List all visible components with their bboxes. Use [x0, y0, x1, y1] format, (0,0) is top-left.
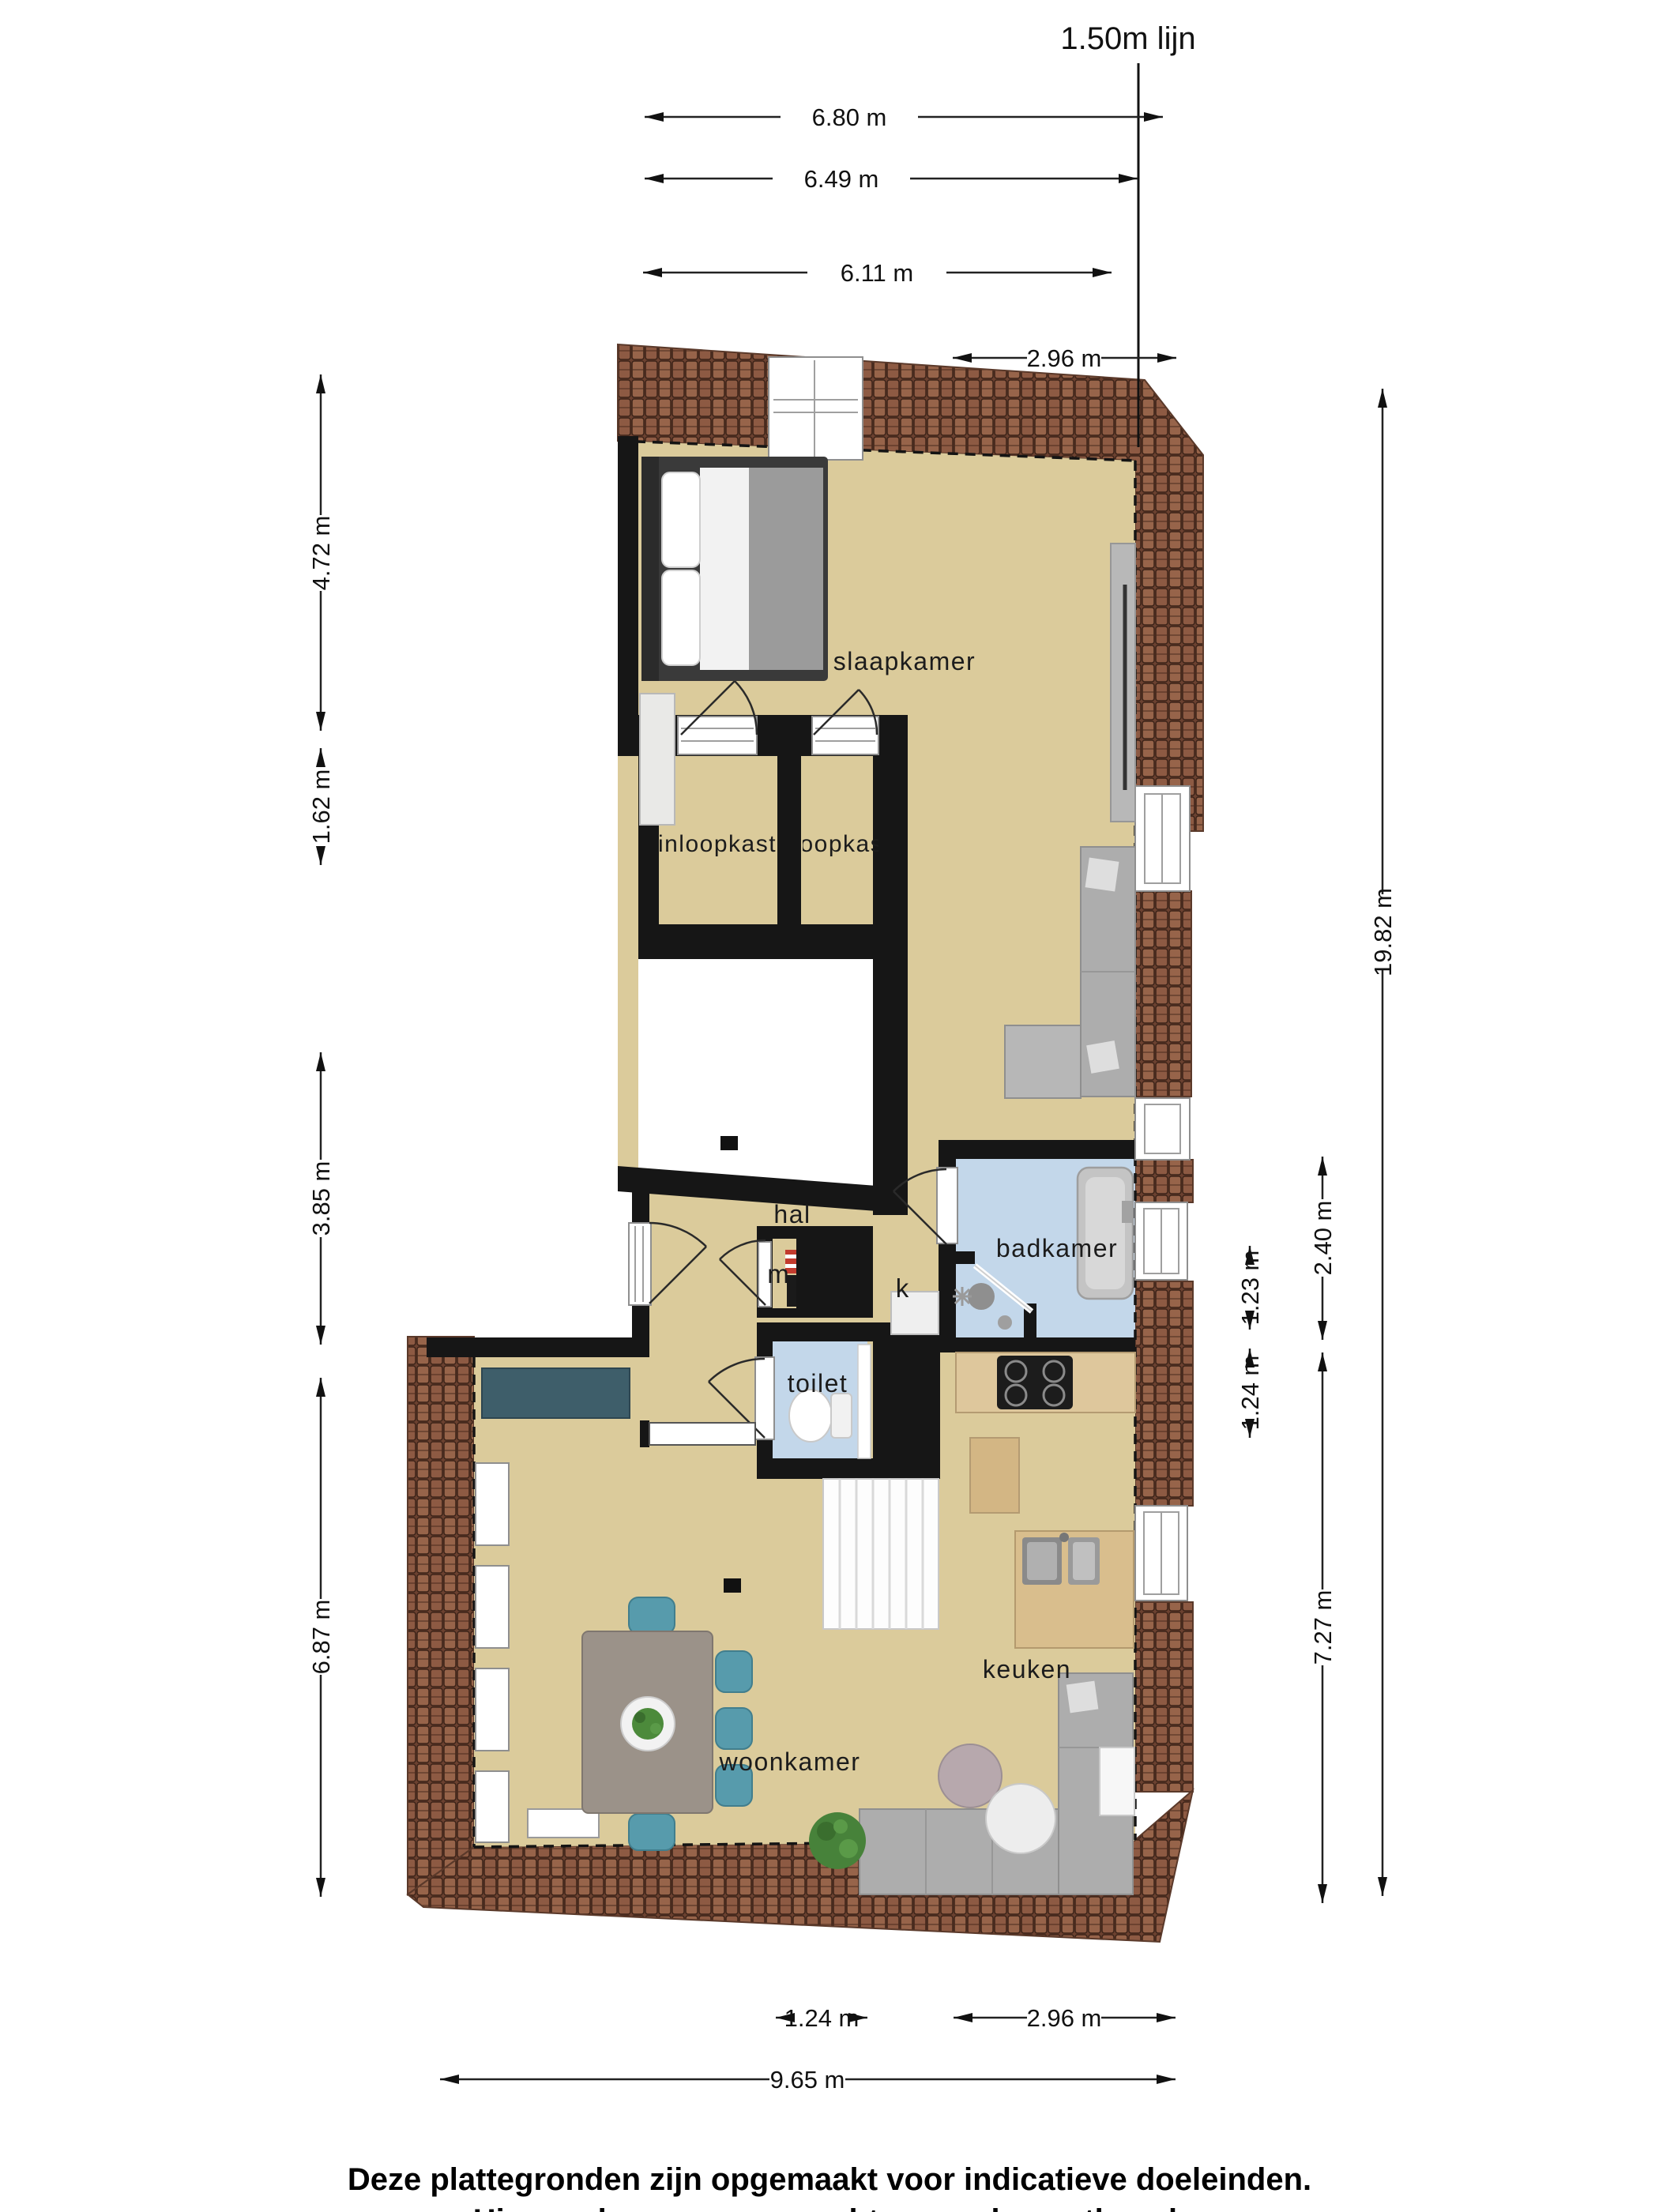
dim-right-124: 1.24 m: [1236, 1349, 1264, 1438]
label-hal: hal: [773, 1200, 811, 1228]
coffee-table-2: [986, 1784, 1055, 1853]
dim-top-649: 6.49 m: [645, 165, 1138, 193]
svg-text:2.96 m: 2.96 m: [1027, 344, 1102, 372]
dresser: [640, 694, 675, 825]
wall-notch-bottom: [427, 1337, 634, 1357]
svg-text:4.72 m: 4.72 m: [307, 516, 335, 591]
dim-top-680: 6.80 m: [645, 103, 1163, 131]
label-slaapkamer: slaapkamer: [833, 647, 976, 675]
roof-right-keuken-2: [1135, 1281, 1193, 1506]
dim-left-162: 1.62 m: [307, 748, 335, 865]
roof-right-keuken-3: [1135, 1602, 1193, 1792]
dim-bottom-124: 1.24 m: [776, 2004, 867, 2032]
footer-disclaimer: Deze plattegronden zijn opgemaakt voor i…: [348, 2162, 1311, 2212]
floorplan-page: slaapkamer inloopkast inloopkast hal bad…: [0, 0, 1659, 2212]
roof-left-band: [408, 1337, 474, 1894]
svg-text:9.65 m: 9.65 m: [770, 2066, 845, 2093]
stairs: [823, 1479, 939, 1629]
dim-left-687: 6.87 m: [307, 1378, 335, 1897]
dim-right-123: 1.23 m: [1236, 1246, 1264, 1330]
dining-chair: [629, 1597, 675, 1634]
wall-slaapkamer-left: [618, 436, 638, 746]
ceiling-spot-2: [724, 1578, 741, 1593]
window-keuken: [1135, 1506, 1187, 1601]
svg-text:6.80 m: 6.80 m: [812, 103, 887, 131]
label-woonkamer: woonkamer: [719, 1747, 861, 1776]
bed: [641, 457, 828, 681]
kitchen-cabinet: [970, 1438, 1019, 1513]
kitchen-counter: [956, 1352, 1135, 1413]
dim-right-1982: 19.82 m: [1369, 389, 1397, 1896]
footer-line-2: Hieraan kunnen geen rechten worden ontle…: [473, 2203, 1186, 2212]
dim-right-727: 7.27 m: [1309, 1352, 1337, 1903]
label-badkamer: badkamer: [996, 1234, 1118, 1262]
wall-shower-stub: [939, 1251, 975, 1264]
wall-closet-right-block: [873, 715, 908, 1215]
svg-text:19.82 m: 19.82 m: [1369, 888, 1397, 976]
wardrobe: [1111, 544, 1135, 822]
dining-chair: [716, 1708, 752, 1749]
wall-threshold-cap: [640, 1420, 649, 1447]
wall-closet-mid: [777, 756, 801, 924]
floorplan-canvas: slaapkamer inloopkast inloopkast hal bad…: [0, 0, 1659, 2212]
svg-text:6.11 m: 6.11 m: [841, 259, 913, 287]
label-meterkast: m: [767, 1259, 789, 1288]
window-right-2: [1135, 1098, 1190, 1160]
floor-plant: [809, 1812, 866, 1869]
roof-right-keuken-1: [1135, 1160, 1193, 1202]
wall-shelf-white: [1100, 1747, 1134, 1815]
svg-text:1.62 m: 1.62 m: [307, 769, 335, 845]
label-inloopkast-left: inloopkast: [658, 831, 777, 857]
wall-keuken-top: [939, 1337, 1135, 1352]
window-badkamer: [1135, 1202, 1187, 1280]
label-kast: k: [896, 1273, 909, 1303]
hal-woonkamer-opening: [649, 1423, 755, 1445]
svg-text:1.23 m: 1.23 m: [1236, 1251, 1264, 1326]
kitchen-island: [1015, 1531, 1134, 1648]
label-keuken: keuken: [983, 1655, 1071, 1683]
dim-left-385: 3.85 m: [307, 1052, 335, 1345]
dim-left-472: 4.72 m: [307, 374, 335, 731]
dim-right-240: 2.40 m: [1309, 1157, 1337, 1340]
dining-chair: [716, 1651, 752, 1692]
bathtub: [1078, 1168, 1133, 1299]
svg-text:1.24 m: 1.24 m: [784, 2004, 860, 2032]
svg-text:7.27 m: 7.27 m: [1309, 1590, 1337, 1665]
svg-text:2.40 m: 2.40 m: [1309, 1201, 1337, 1276]
dim-bottom-296: 2.96 m: [954, 2004, 1176, 2032]
sideboard-teal: [482, 1368, 630, 1418]
svg-text:6.49 m: 6.49 m: [804, 165, 879, 193]
label-toilet: toilet: [788, 1369, 848, 1398]
wall-closets-bottom: [638, 924, 908, 959]
dining-chair: [629, 1814, 675, 1850]
dim-top-296: 2.96 m: [953, 344, 1176, 372]
slaapkamer-window: [769, 357, 863, 460]
dim-top-611: 6.11 m: [643, 259, 1112, 287]
void-opening: [638, 959, 873, 1188]
svg-text:3.85 m: 3.85 m: [307, 1161, 335, 1236]
dim-bottom-965: 9.65 m: [440, 2066, 1176, 2093]
roof-right-patch: [1135, 891, 1191, 1097]
wall-stair-block: [873, 1322, 940, 1479]
svg-text:2.96 m: 2.96 m: [1027, 2004, 1102, 2032]
wall-badkamer-top: [939, 1140, 1135, 1159]
svg-text:1.24 m: 1.24 m: [1236, 1356, 1264, 1431]
height-line-label: 1.50m lijn: [1060, 21, 1195, 56]
wall-toilet-top: [757, 1322, 873, 1341]
ceiling-spot-1: [720, 1136, 738, 1150]
footer-line-1: Deze plattegronden zijn opgemaakt voor i…: [348, 2162, 1311, 2197]
window-right-1: [1135, 786, 1190, 891]
svg-text:6.87 m: 6.87 m: [307, 1600, 335, 1675]
